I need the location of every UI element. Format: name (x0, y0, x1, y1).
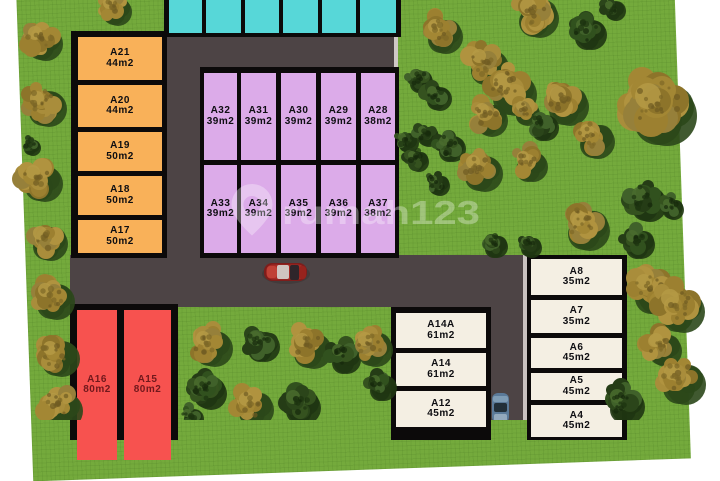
svg-text:rumah123: rumah123 (282, 194, 480, 231)
